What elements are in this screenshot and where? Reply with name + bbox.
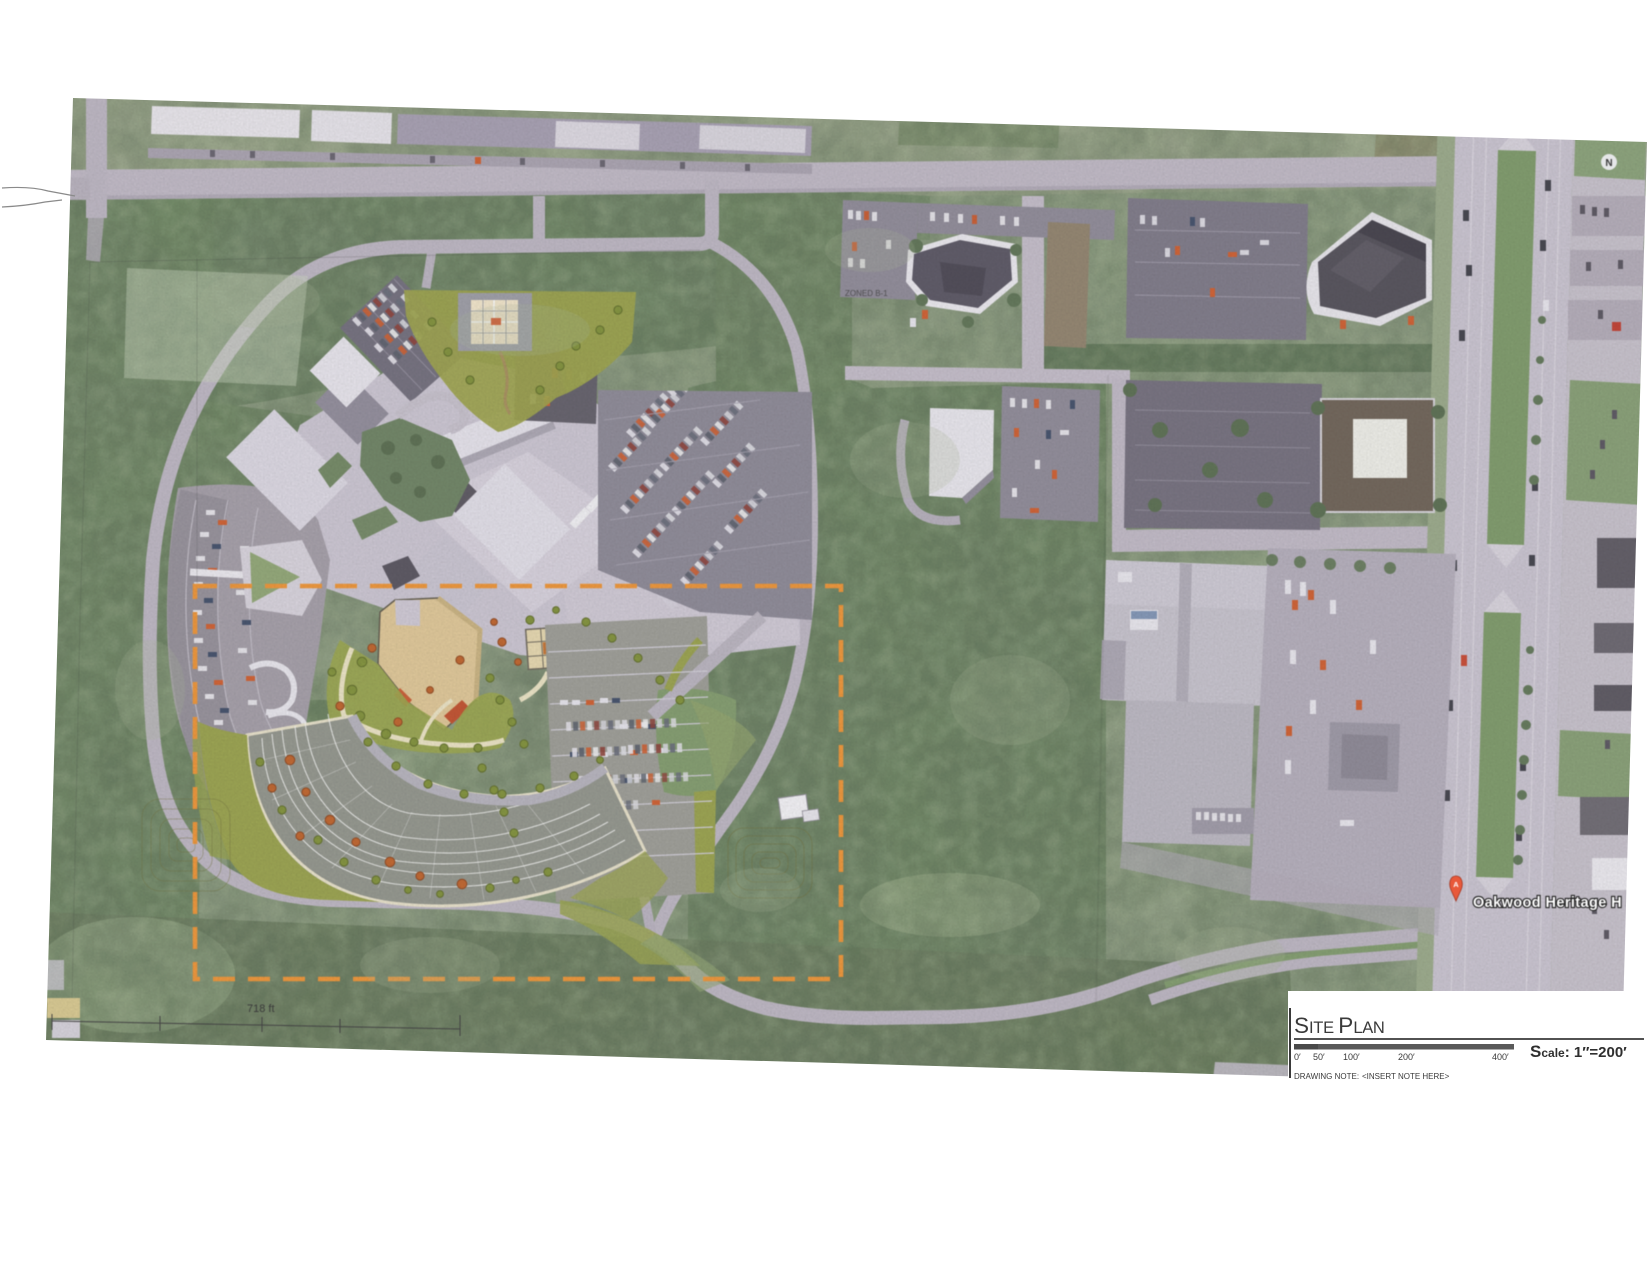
svg-text:50′: 50′ — [1313, 1052, 1325, 1062]
svg-text:Oakwood Heritage H: Oakwood Heritage H — [1473, 895, 1622, 911]
svg-text:100′: 100′ — [1343, 1052, 1360, 1062]
svg-text:N: N — [1605, 158, 1612, 169]
svg-text:0′: 0′ — [1294, 1052, 1301, 1062]
svg-text:<INSERT NOTE HERE>: <INSERT NOTE HERE> — [1362, 1072, 1450, 1081]
svg-text:400′: 400′ — [1492, 1052, 1509, 1062]
svg-text:200′: 200′ — [1398, 1052, 1415, 1062]
svg-text:DRAWING NOTE:: DRAWING NOTE: — [1294, 1072, 1359, 1081]
svg-text:A: A — [1453, 880, 1459, 889]
